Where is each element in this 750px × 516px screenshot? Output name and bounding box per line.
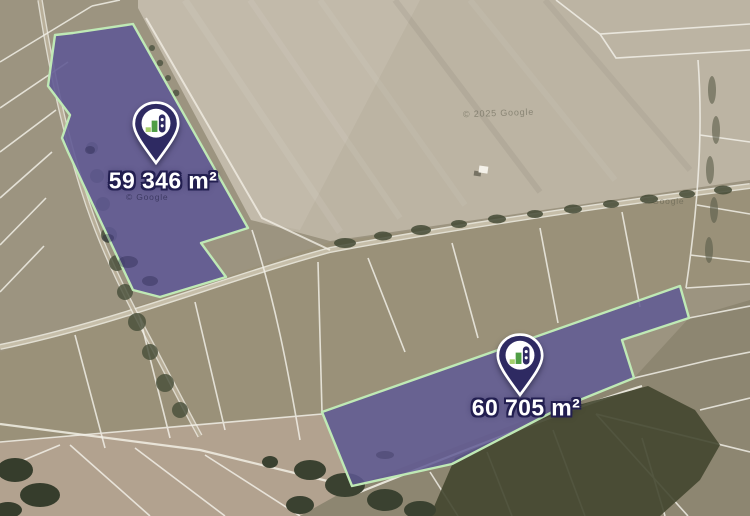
map-canvas[interactable]: © 2025 Google © Google © Google 59 346 m… [0, 0, 750, 516]
map-pin-parcel-2[interactable] [496, 333, 544, 397]
map-pin-parcel-1[interactable] [132, 101, 180, 165]
satellite-basemap [0, 0, 750, 516]
area-label-parcel-1: 59 346 m² [109, 168, 217, 195]
area-label-parcel-2: 60 705 m² [472, 395, 580, 422]
